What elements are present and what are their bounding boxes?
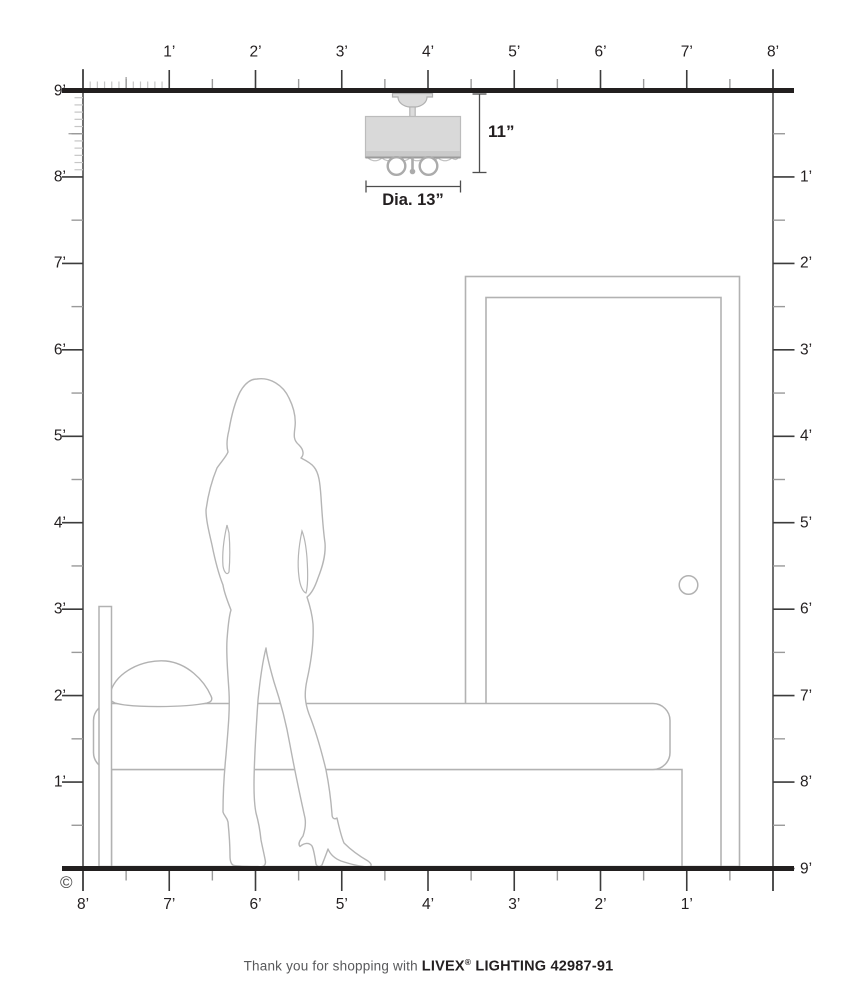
ruler-label-left-8: 1’ [54, 774, 66, 790]
ruler-label-left-6: 3’ [54, 601, 66, 617]
ruler-label-bottom-2: 6’ [249, 897, 261, 913]
ruler-label-left-4: 5’ [54, 429, 66, 445]
ruler-label-right-0: 1’ [800, 169, 812, 185]
ruler-label-bottom-3: 5’ [336, 897, 348, 913]
ruler-label-bottom-5: 3’ [508, 897, 520, 913]
ruler-label-top-6: 7’ [681, 44, 693, 60]
footer-product: LIGHTING 42987-91 [471, 959, 613, 975]
ruler-label-bottom-7: 1’ [681, 897, 693, 913]
footer-brand: LIVEX [422, 959, 465, 975]
fixture-height-label: 11” [488, 123, 514, 140]
ruler-label-right-4: 5’ [800, 515, 812, 531]
ruler-label-right-2: 3’ [800, 342, 812, 358]
ruler-label-bottom-0: 8’ [77, 897, 89, 913]
ruler-label-left-2: 7’ [54, 256, 66, 272]
ruler-label-top-1: 2’ [249, 44, 261, 60]
ruler-label-right-7: 8’ [800, 774, 812, 790]
bed-pillow [109, 661, 211, 707]
ruler-label-top-4: 5’ [508, 44, 520, 60]
light-fixture [366, 94, 461, 175]
ruler-label-right-1: 2’ [800, 256, 812, 272]
ruler-label-left-5: 4’ [54, 515, 66, 531]
door-knob [679, 576, 698, 595]
bed-base [112, 770, 683, 867]
ruler-label-top-3: 4’ [422, 44, 434, 60]
fixture-diameter-label: Dia. 13” [363, 192, 463, 209]
ruler-label-bottom-1: 7’ [163, 897, 175, 913]
ruler-label-top-5: 6’ [594, 44, 606, 60]
copyright-symbol: © [60, 874, 73, 891]
ruler-label-bottom-6: 2’ [594, 897, 606, 913]
fixture-scroll-arm-right [420, 157, 438, 175]
ruler-label-top-7: 8’ [767, 44, 779, 60]
footer-prefix: Thank you for shopping with [244, 959, 422, 974]
ruler-label-bottom-4: 4’ [422, 897, 434, 913]
ruler-label-right-6: 7’ [800, 688, 812, 704]
ruler-label-right-5: 6’ [800, 601, 812, 617]
fixture-canopy [393, 94, 433, 108]
ruler-label-left-7: 2’ [54, 688, 66, 704]
ruler-label-left-1: 8’ [54, 169, 66, 185]
ruler-label-right-3: 4’ [800, 429, 812, 445]
scene-drawing [0, 0, 857, 1000]
footer-text: Thank you for shopping with LIVEX® LIGHT… [0, 957, 857, 975]
ruler-label-right-8: 9’ [800, 861, 812, 877]
fixture-scroll-arm-left [388, 157, 406, 175]
bed-mattress [94, 704, 671, 770]
ruler-label-top-2: 3’ [336, 44, 348, 60]
ruler-label-left-3: 6’ [54, 342, 66, 358]
ruler-label-top-0: 1’ [163, 44, 175, 60]
scale-diagram-canvas: 11” Dia. 13” 1’2’3’4’5’6’7’8’8’7’6’5’4’3… [0, 0, 857, 1000]
fixture-stem [410, 107, 415, 117]
ruler-label-left-0: 9’ [54, 83, 66, 99]
bed-headboard-post [99, 607, 112, 867]
fixture-finial [410, 169, 416, 175]
